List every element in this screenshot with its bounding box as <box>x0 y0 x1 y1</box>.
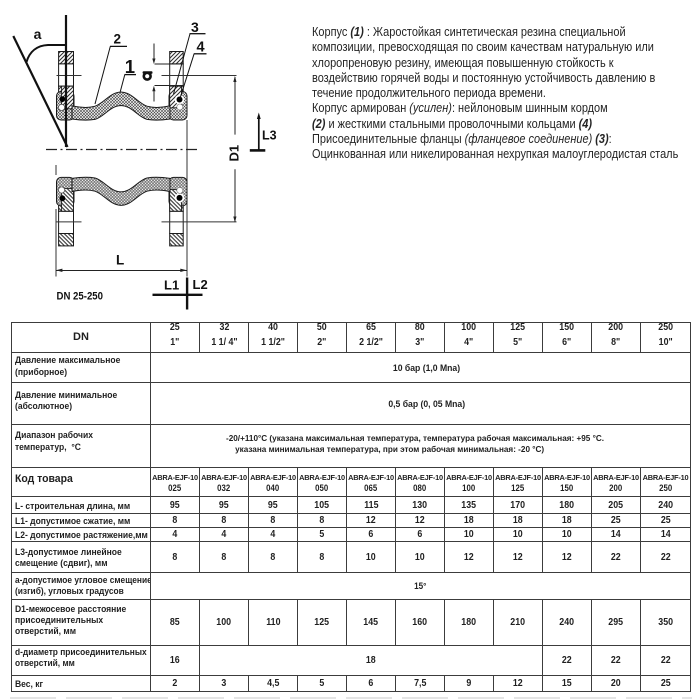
svg-text:L1: L1 <box>164 278 179 293</box>
svg-text:L: L <box>116 253 124 268</box>
svg-text:DN 25-250: DN 25-250 <box>57 291 104 303</box>
svg-text:3: 3 <box>191 19 199 35</box>
svg-text:2: 2 <box>114 32 122 47</box>
svg-text:1: 1 <box>125 56 135 77</box>
svg-text:L2: L2 <box>193 277 208 292</box>
svg-text:4: 4 <box>197 40 205 56</box>
svg-text:D1: D1 <box>227 145 242 162</box>
svg-text:L3: L3 <box>262 129 277 143</box>
svg-text:a: a <box>34 26 42 42</box>
